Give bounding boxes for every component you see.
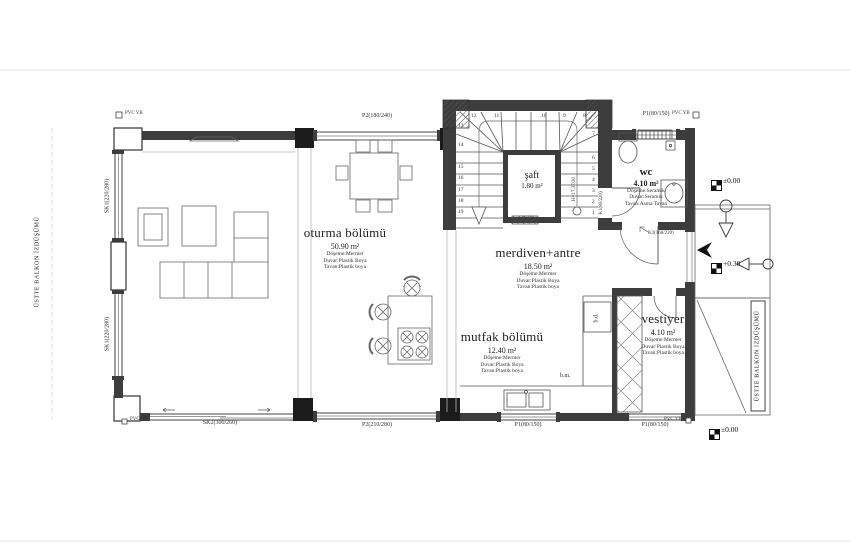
room-label-mutfak: mutfak bölümü 12.40 m² Döşeme:Mermer Duv…: [428, 330, 576, 375]
step-number: 13: [458, 123, 464, 129]
step-number: 18: [458, 198, 464, 204]
window-label-p1-kitchen: P1(80/150): [515, 422, 542, 429]
window-label-sk2: SK2(300/260): [203, 420, 237, 427]
balcony-note-left: ÜSTTE BALKON İZDÜŞÜMÜ: [35, 217, 42, 308]
finish-ceiling: Tavan:Plastik boya: [428, 368, 576, 375]
window-label-sk1-lower: SK1(220/280): [105, 317, 112, 351]
step-number: 10: [541, 113, 547, 119]
room-area: 50.90 m²: [270, 242, 420, 251]
shaft-vent-label: 120/220: [518, 216, 534, 222]
step-number: 4: [592, 177, 595, 183]
step-number: 3: [592, 188, 595, 194]
step-number: 15: [458, 164, 464, 170]
step-number: 8: [583, 113, 586, 119]
room-name: vestiyer: [616, 312, 710, 327]
pvc-marker-bottom-right: PVC YB: [664, 417, 682, 423]
room-area: 18.50 m²: [462, 262, 614, 271]
elevation-symbol-entry: [711, 180, 722, 191]
finish-ceiling: Tavan:Plastik boya: [270, 264, 420, 271]
room-label-vestiyer: vestiyer 4.10 m² Döşeme:Mermer Duvar:Pla…: [616, 312, 710, 357]
room-label-merdiven: merdiven+antre 18.50 m² Döşeme:Mermer Du…: [462, 246, 614, 291]
fridge-label: b.d.: [594, 314, 601, 323]
window-label-p2-top: P2(180/240): [362, 113, 392, 120]
elevation-symbol-porch: [711, 263, 722, 274]
balcony-note-right: ÜSTTE BALKON İZDÜŞÜMÜ: [751, 301, 766, 412]
elevation-value-ground: ±0.00: [721, 426, 738, 435]
room-area: 1.80 m²: [506, 182, 558, 190]
step-number: 12: [471, 113, 477, 119]
step-number: 17: [458, 187, 464, 193]
room-area: 12.40 m²: [428, 346, 576, 355]
stair-height-note: H=17,37/30: [572, 177, 578, 201]
room-name: merdiven+antre: [462, 246, 614, 261]
room-area: 4.10 m²: [616, 328, 710, 337]
room-name: wc: [608, 166, 684, 179]
floor-plan-canvas: oturma bölümü 50.90 m² Döşeme:Mermer Duv…: [0, 0, 850, 550]
room-name: oturma bölümü: [270, 226, 420, 241]
room-name: şaft: [506, 170, 558, 182]
step-number: 19: [458, 209, 464, 215]
finish-ceiling: Tavan:Plastik boya: [616, 350, 710, 357]
window-label-p1-vestiyer: P1(80/150): [642, 422, 669, 429]
step-number: 5: [592, 166, 595, 172]
room-label-oturma: oturma bölümü 50.90 m² Döşeme:Mermer Duv…: [270, 226, 420, 271]
step-number: 11: [494, 113, 499, 119]
step-number: 7: [592, 131, 595, 137]
plan-linework: [0, 0, 850, 550]
dishwasher-label: b.m.: [560, 373, 571, 380]
pvc-marker-top-left: PVC YB: [125, 111, 143, 117]
elevation-value-porch: +0.30: [723, 260, 740, 269]
room-name: mutfak bölümü: [428, 330, 576, 345]
window-label-sk1-upper: SK1(220/280): [105, 179, 112, 213]
window-label-p2-bottom: P2(210/280): [362, 422, 392, 429]
step-number: 14: [458, 142, 464, 148]
pvc-marker-bottom-left: PVC YB: [130, 417, 148, 423]
door-label-k1: K1(80/220): [599, 191, 605, 214]
room-label-saft: şaft 1.80 m²: [506, 170, 558, 190]
elevation-value-entry: ±0.00: [723, 177, 740, 186]
room-label-wc: wc 4.10 m² Döşeme:Seramik Duvar:Seramik …: [608, 166, 684, 207]
step-number: 9: [563, 113, 566, 119]
step-number: 1: [592, 210, 595, 216]
step-number: 2: [592, 199, 595, 205]
step-number: 16: [458, 175, 464, 181]
pvc-marker-top-right: PVC YB: [672, 111, 690, 117]
step-number: 6: [592, 155, 595, 161]
room-area: 4.10 m²: [608, 179, 684, 188]
finish-ceiling: Tavan:Asma Tavan: [608, 201, 684, 208]
door-label-k3: K3(160/220): [648, 231, 674, 237]
window-label-p1-top: P1(80/150): [643, 111, 670, 118]
finish-ceiling: Tavan:Plastik boya: [462, 284, 614, 291]
elevation-symbol-ground: [709, 429, 720, 440]
